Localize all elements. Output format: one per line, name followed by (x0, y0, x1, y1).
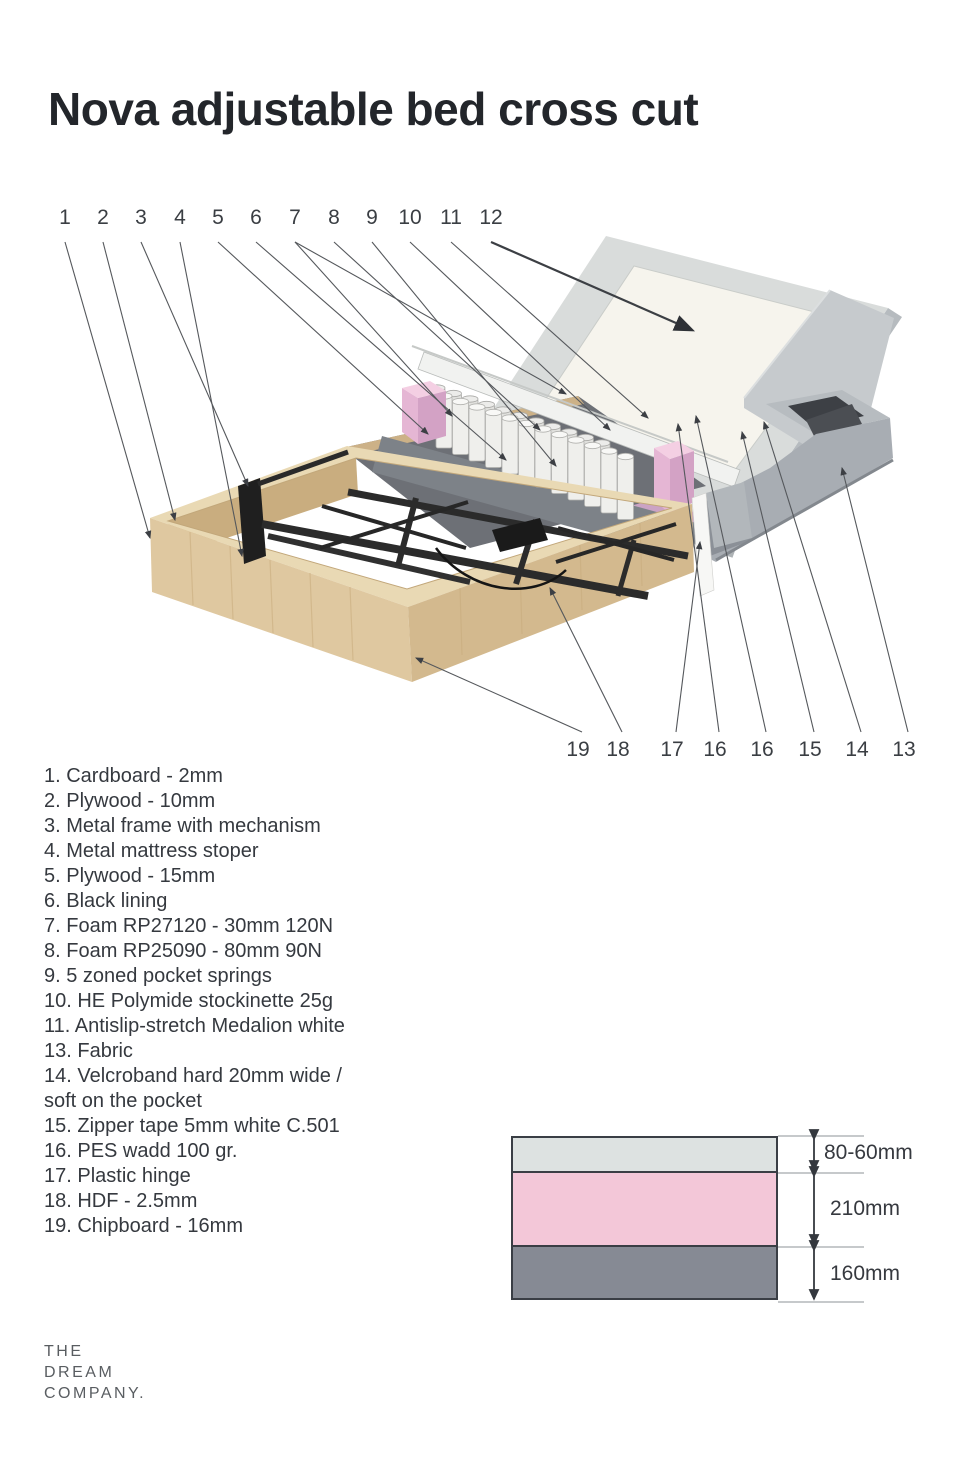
legend-item: 11. Antislip-stretch Medalion white (44, 1014, 474, 1039)
logo-line-2: DREAM (44, 1362, 146, 1383)
legend-item: 15. Zipper tape 5mm white C.501 (44, 1114, 474, 1139)
thickness-label-middle: 210mm (830, 1197, 900, 1221)
hinge-strips (692, 482, 752, 596)
legend-item: 8. Foam RP25090 - 80mm 90N (44, 939, 474, 964)
legend-item: 3. Metal frame with mechanism (44, 814, 474, 839)
legend-item: 16. PES wadd 100 gr. (44, 1139, 474, 1164)
legend-item: 17. Plastic hinge (44, 1164, 474, 1189)
thickness-layer-top (511, 1136, 778, 1173)
legend-item: 1. Cardboard - 2mm (44, 764, 474, 789)
legend-item: 9. 5 zoned pocket springs (44, 964, 474, 989)
company-logo: THE DREAM COMPANY. (44, 1341, 146, 1404)
legend-item: 18. HDF - 2.5mm (44, 1189, 474, 1214)
logo-line-3: COMPANY. (44, 1383, 146, 1404)
thickness-label-top: 80-60mm (824, 1141, 913, 1165)
thickness-diagram (511, 1136, 778, 1300)
thickness-layer-bottom (511, 1245, 778, 1300)
legend-item: 14. Velcroband hard 20mm wide / soft on … (44, 1064, 474, 1114)
legend-item: 19. Chipboard - 16mm (44, 1214, 474, 1239)
legend-item: 4. Metal mattress stoper (44, 839, 474, 864)
thickness-label-bottom: 160mm (830, 1262, 900, 1286)
parts-legend: 1. Cardboard - 2mm2. Plywood - 10mm3. Me… (44, 764, 474, 1239)
logo-line-1: THE (44, 1341, 146, 1362)
legend-item: 7. Foam RP27120 - 30mm 120N (44, 914, 474, 939)
bed-cross-cut-illustration (30, 195, 940, 775)
infographic-page: Nova adjustable bed cross cut 1234567891… (0, 0, 970, 1462)
legend-item: 13. Fabric (44, 1039, 474, 1064)
legend-item: 2. Plywood - 10mm (44, 789, 474, 814)
thickness-layer-middle (511, 1171, 778, 1247)
legend-item: 6. Black lining (44, 889, 474, 914)
legend-item: 5. Plywood - 15mm (44, 864, 474, 889)
page-title: Nova adjustable bed cross cut (48, 82, 698, 136)
legend-item: 10. HE Polymide stockinette 25g (44, 989, 474, 1014)
